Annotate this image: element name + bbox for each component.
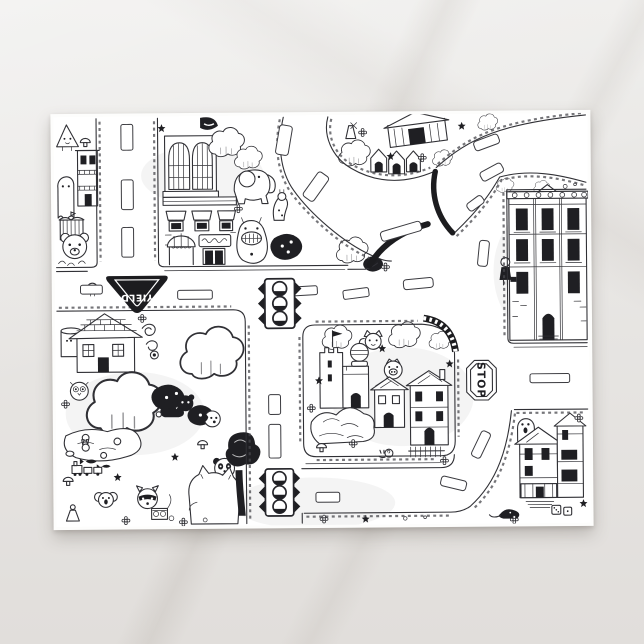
pig — [384, 359, 402, 379]
doodle-map-artwork: YIELD STOP — [53, 113, 590, 527]
postcard: YIELD STOP — [50, 110, 593, 530]
awning-window — [192, 211, 212, 231]
traffic-light — [259, 469, 301, 516]
product-photo-scene: YIELD STOP — [0, 0, 644, 644]
tall-house — [406, 369, 452, 445]
cat-face — [364, 330, 382, 349]
shop-sign — [199, 235, 231, 247]
gabled-cottages — [371, 149, 421, 174]
awning-window — [166, 211, 186, 231]
double-door — [203, 248, 225, 264]
awning-window — [218, 211, 236, 231]
pond — [64, 428, 141, 461]
traffic-light — [258, 279, 302, 329]
stop-sign: STOP — [466, 360, 496, 400]
owl — [70, 382, 88, 400]
stop-sign-label: STOP — [474, 362, 487, 399]
stone-mansion — [499, 184, 589, 340]
ghost-character — [58, 177, 74, 220]
yield-sign-label: YIELD — [120, 292, 154, 303]
